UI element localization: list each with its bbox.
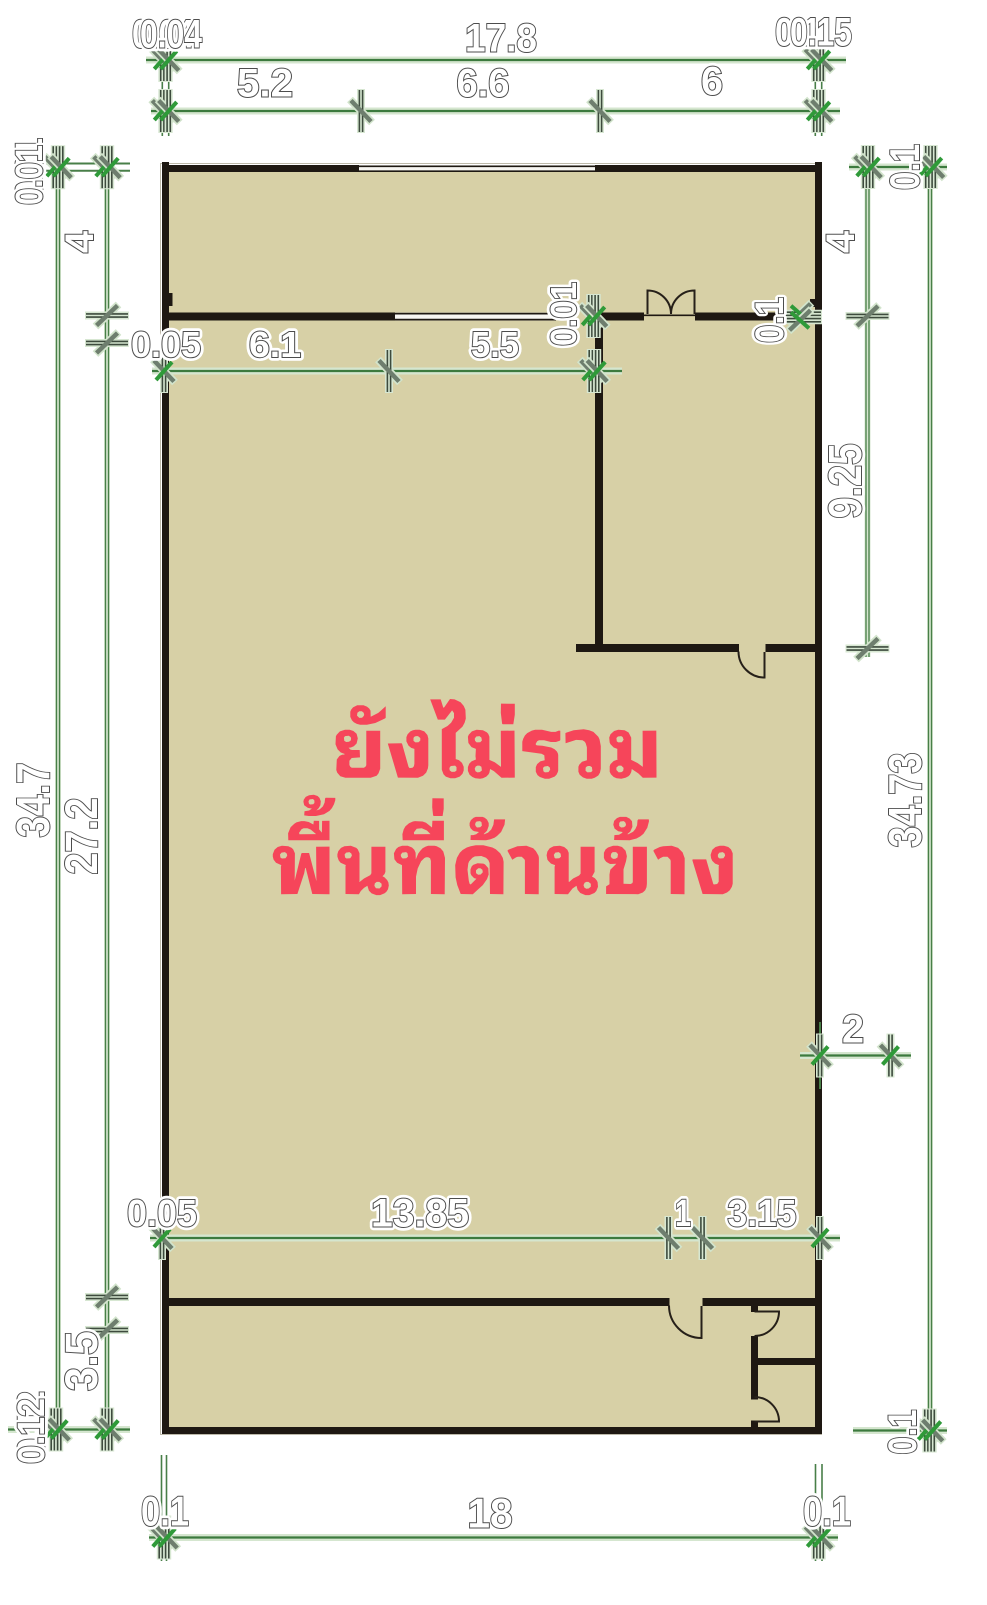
svg-text:2: 2 (842, 1008, 864, 1052)
svg-text:34.7: 34.7 (7, 763, 59, 838)
svg-text:0.04: 0.04 (140, 13, 203, 57)
svg-text:3.5: 3.5 (56, 1331, 107, 1391)
svg-text:6.1: 6.1 (249, 324, 301, 365)
svg-text:0.1: 0.1 (748, 297, 792, 343)
svg-text:1: 1 (675, 1193, 691, 1235)
svg-text:5.5: 5.5 (471, 324, 519, 365)
svg-text:17.8: 17.8 (465, 17, 537, 61)
svg-text:27.2: 27.2 (56, 798, 107, 875)
svg-text:0.1: 0.1 (881, 144, 928, 190)
svg-text:0.05: 0.05 (131, 324, 201, 365)
svg-text:0.1: 0.1 (803, 1487, 851, 1534)
svg-text:18: 18 (468, 1489, 513, 1536)
svg-text:0.05: 0.05 (127, 1193, 197, 1235)
svg-text:34.73: 34.73 (879, 753, 931, 848)
svg-text:6.6: 6.6 (457, 62, 510, 106)
svg-text:0.15: 0.15 (790, 11, 852, 55)
svg-text:4: 4 (58, 230, 102, 253)
svg-text:0.01: 0.01 (543, 282, 584, 346)
svg-text:9.25: 9.25 (819, 444, 871, 519)
svg-text:0.01: 0.01 (9, 145, 51, 205)
svg-text:13.85: 13.85 (371, 1192, 469, 1236)
svg-text:5.2: 5.2 (237, 62, 293, 106)
svg-text:6: 6 (701, 60, 723, 104)
svg-text:4: 4 (819, 230, 863, 253)
svg-text:0.12: 0.12 (11, 1398, 53, 1464)
svg-text:0.1: 0.1 (141, 1487, 189, 1534)
svg-text:3.15: 3.15 (728, 1193, 797, 1235)
svg-text:0.1: 0.1 (881, 1410, 925, 1455)
